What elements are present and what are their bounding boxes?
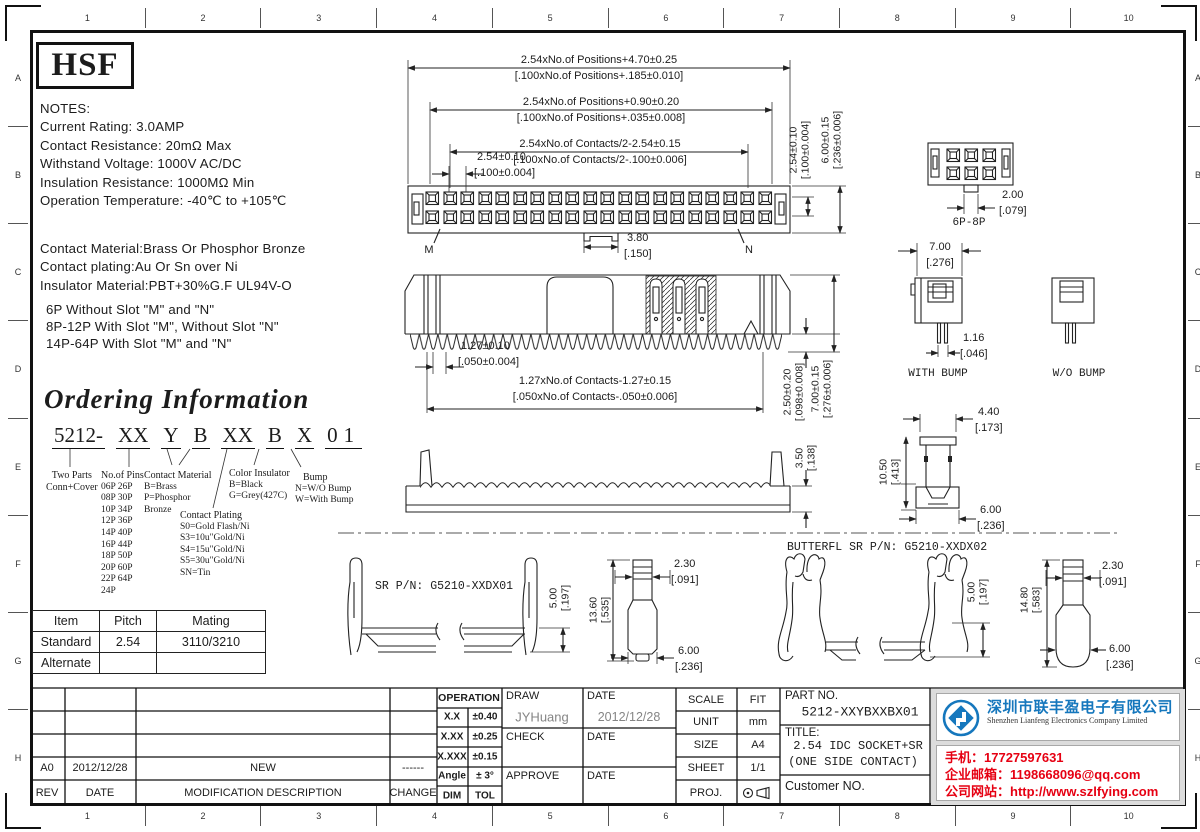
dim-label: 2.54xNo.of Positions+0.90±0.20	[520, 96, 682, 108]
materials-block: Contact Material:Brass Or Phosphor Bronz…	[40, 240, 305, 295]
dim-label: 3.80	[627, 232, 648, 244]
company-header-panel: 深圳市联丰盈电子有限公司 Shenzhen Lianfeng Electroni…	[936, 693, 1180, 741]
dim-label: 2.54±0.10	[477, 151, 526, 163]
dim-label: 5.00[.197]	[549, 585, 572, 611]
rev-header: MODIFICATION DESCRIPTION	[184, 787, 341, 799]
tol-label: X.XX	[441, 732, 464, 743]
table-cell: Standard	[33, 632, 100, 653]
dim-label: [.050±0.004]	[458, 356, 519, 368]
rev-cell: NEW	[250, 762, 276, 774]
customer-no-label: Customer NO.	[785, 779, 865, 793]
slot-notes-block: 6P Without Slot "M" and "N" 8P-12P With …	[46, 302, 279, 352]
dim-label: [.100xNo.of Positions+.185±0.010]	[512, 70, 686, 82]
table-cell: 2.54	[100, 632, 157, 653]
slot-note: 8P-12P With Slot "M", Without Slot "N"	[46, 319, 279, 336]
ordering-contact-plating: Contact Plating S0=Gold Flash/Ni S3=10u"…	[180, 510, 250, 580]
title-line: (ONE SIDE CONTACT)	[788, 755, 918, 769]
notes-line: Withstand Voltage: 1000V AC/DC	[40, 155, 287, 173]
notes-line: Contact Resistance: 20mΩ Max	[40, 137, 287, 155]
sheet-label: SHEET	[688, 762, 725, 774]
dim-label: 2.30	[1102, 560, 1123, 572]
hsf-logo: HSF	[36, 42, 134, 89]
title-line: 2.54 IDC SOCKET+SR	[793, 739, 923, 753]
table-cell	[157, 653, 266, 674]
dim-label: 4.40	[978, 406, 999, 418]
wo-bump-view	[1052, 278, 1094, 343]
operation-header: OPERATION	[438, 692, 500, 704]
material-line: Contact plating:Au Or Sn over Ni	[40, 258, 305, 276]
tol-label: X.XXX	[437, 752, 466, 763]
dim-label: [.046]	[960, 348, 988, 360]
slot-n-label: N	[745, 244, 753, 256]
ordering-color-insulator: Color Insulator B=Black G=Grey(427C)	[229, 468, 290, 503]
notes-block: NOTES: Current Rating: 3.0AMP Contact Re…	[40, 100, 287, 210]
company-block: 深圳市联丰盈电子有限公司 Shenzhen Lianfeng Electroni…	[931, 689, 1185, 805]
slot-m-label: M	[424, 244, 433, 256]
butterfly-part-number: BUTTERFL SR P/N: G5210-XXDX02	[787, 541, 987, 554]
dim-label: 6.00	[980, 504, 1001, 516]
unit-value: mm	[749, 716, 767, 728]
rev-cell: ------	[402, 762, 424, 774]
dim-label: [.276]	[923, 257, 957, 269]
material-line: Insulator Material:PBT+30%G.F UL94V-O	[40, 277, 305, 295]
engineering-drawing-sheet: 12345678910 12345678910 ABCDEFGH ABCDEFG…	[0, 0, 1200, 832]
conn-6p8p-label: 6P-8P	[952, 217, 985, 229]
dim-label: 1.27±0.10	[461, 340, 510, 352]
title-label: TITLE:	[785, 727, 820, 739]
rev-header: CHANGE	[389, 787, 436, 799]
dim-label: 6.00±0.15[.236±0.006]	[821, 111, 844, 169]
dim-label: [.100xNo.of Positions+.035±0.008]	[514, 112, 688, 124]
part-no-value: 5212-XXYBXXBX01	[801, 705, 918, 720]
dim-label: 2.00	[1002, 189, 1023, 201]
size-value: A4	[751, 739, 764, 751]
part-no-label: PART NO.	[785, 690, 838, 702]
dim-label: 2.54xNo.of Positions+4.70±0.25	[518, 54, 680, 66]
sr-side-view	[348, 558, 674, 664]
dim-label: 6.00	[1109, 643, 1130, 655]
tol-label: X.X	[444, 712, 460, 723]
table-header: Pitch	[100, 611, 157, 632]
conn-6p8p-view	[928, 143, 1013, 214]
tol-value: ± 3°	[476, 771, 494, 782]
dim-label: 10.50[.413]	[879, 459, 902, 485]
table-cell	[100, 653, 157, 674]
table-cell: Alternate	[33, 653, 100, 674]
dim-label: 1.16	[963, 332, 984, 344]
dim-label: 7.00±0.15[.276±0.006]	[811, 360, 834, 418]
dim-label: 13.60[.535]	[589, 597, 612, 623]
wafer-view	[899, 414, 976, 524]
dim-label: 3.50[.138]	[795, 445, 818, 471]
company-email: 企业邮箱：1198668096@qq.com	[945, 766, 1179, 783]
dim-label: 2.54xNo.of Contacts/2-2.54±0.15	[516, 138, 683, 150]
dim-label: 7.00	[926, 241, 953, 253]
dim-label: [.091]	[671, 574, 699, 586]
drawer-name: JYHuang	[515, 710, 568, 725]
company-website: 公司网站：http://www.szlfying.com	[945, 783, 1179, 800]
slot-note: 14P-64P With Slot "M" and "N"	[46, 336, 279, 353]
table-header: Item	[33, 611, 100, 632]
date-label: DATE	[587, 770, 616, 782]
tol-value: ±0.25	[473, 732, 498, 743]
scale-label: SCALE	[688, 694, 724, 706]
dim-label: 14.80[.583]	[1020, 587, 1043, 613]
dim-label: [.091]	[1099, 576, 1127, 588]
tol-label: Angle	[438, 771, 466, 782]
butterfly-sr-view	[778, 554, 1106, 667]
tol-value: ±0.40	[473, 712, 498, 723]
slot-note: 6P Without Slot "M" and "N"	[46, 302, 279, 319]
rev-cell: 2012/12/28	[72, 762, 127, 774]
dim-label: [.050xNo.of Contacts-.050±0.006]	[513, 391, 677, 403]
table-cell: 3110/3210	[157, 632, 266, 653]
dim-label: 1.27xNo.of Contacts-1.27±0.15	[519, 375, 671, 387]
company-phone: 手机：17727597631	[945, 749, 1179, 766]
material-line: Contact Material:Brass Or Phosphor Bronz…	[40, 240, 305, 258]
dim-label: [.236]	[675, 661, 703, 673]
dim-label: [.236]	[977, 520, 1005, 532]
ordering-title: Ordering Information	[44, 384, 309, 415]
dim-label: [.173]	[975, 422, 1003, 434]
wo-bump-label: W/O BUMP	[1053, 368, 1106, 380]
dim-label: 2.50±0.20[.098±0.008]	[783, 363, 806, 421]
proj-label: PROJ.	[690, 787, 722, 799]
pitch-mating-table: Item Pitch Mating Standard 2.54 3110/321…	[32, 610, 266, 674]
ordering-pins: No.of Pins 06P 26P 08P 30P 10P 34P 12P 3…	[101, 470, 144, 598]
dim-label: 2.30	[674, 558, 695, 570]
dim-label: 5.00[.197]	[967, 579, 990, 605]
sheet-value: 1/1	[750, 762, 765, 774]
projection-symbol-icon	[741, 786, 775, 800]
table-header: Mating	[157, 611, 266, 632]
with-bump-label: WITH BUMP	[908, 368, 967, 380]
dim-label: [.079]	[999, 205, 1027, 217]
draw-date: 2012/12/28	[598, 710, 661, 724]
ordering-code: 5212-XXYBXXBX01	[52, 423, 373, 449]
notes-line: Current Rating: 3.0AMP	[40, 118, 287, 136]
notes-line: NOTES:	[40, 100, 287, 118]
company-name-en: Shenzhen Lianfeng Electronics Company Li…	[987, 716, 1173, 725]
dim-label: [.100±0.004]	[474, 167, 535, 179]
company-logo-icon	[941, 698, 981, 738]
rev-cell: A0	[40, 762, 53, 774]
tol-value: TOL	[475, 791, 495, 802]
notes-line: Insulation Resistance: 1000MΩ Min	[40, 174, 287, 192]
company-name-cn: 深圳市联丰盈电子有限公司	[987, 699, 1173, 716]
sr-part-number: SR P/N: G5210-XXDX01	[375, 580, 513, 593]
dim-label: [.150]	[624, 248, 652, 260]
rev-header: REV	[36, 787, 59, 799]
size-label: SIZE	[694, 739, 718, 751]
tol-label: DIM	[443, 791, 461, 802]
draw-label: DRAW	[506, 690, 539, 702]
dim-label: [.236]	[1106, 659, 1134, 671]
notes-line: Operation Temperature: -40℃ to +105℃	[40, 192, 287, 210]
dim-label: 6.00	[678, 645, 699, 657]
date-label: DATE	[587, 690, 616, 702]
rev-header: DATE	[86, 787, 115, 799]
approve-label: APPROVE	[506, 770, 559, 782]
ordering-two-parts: Two Parts Conn+Cover	[46, 470, 98, 493]
tol-value: ±0.15	[473, 752, 498, 763]
scale-value: FIT	[750, 694, 767, 706]
unit-label: UNIT	[693, 716, 719, 728]
ordering-bump: Bump N=W/O Bump W=With Bump	[295, 472, 354, 507]
dim-label: 2.54±0.10[.100±0.004]	[789, 121, 812, 179]
dim-label: [.100xNo.of Contacts/2-.100±0.006]	[510, 154, 690, 166]
company-contact-panel: 手机：17727597631 企业邮箱：1198668096@qq.com 公司…	[936, 745, 1180, 801]
check-label: CHECK	[506, 731, 545, 743]
date-label: DATE	[587, 731, 616, 743]
sr-strip-view	[406, 450, 812, 528]
